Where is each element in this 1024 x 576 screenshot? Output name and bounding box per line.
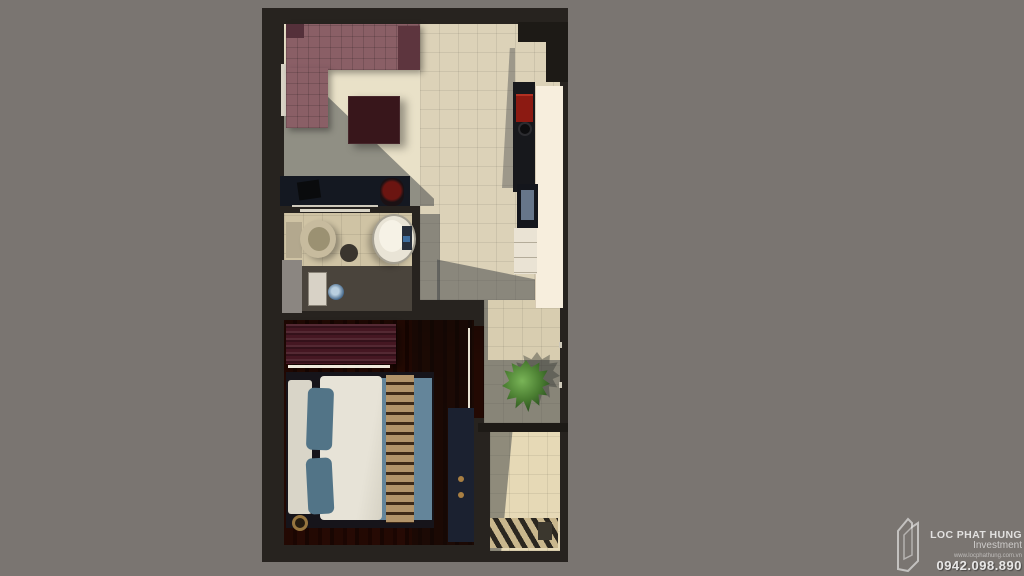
stove-burner bbox=[518, 122, 532, 136]
shower-drain bbox=[328, 284, 344, 300]
bathroom-stool bbox=[340, 244, 358, 262]
doormat-item bbox=[538, 522, 552, 540]
bedroom-doorway-floor bbox=[474, 326, 484, 418]
coffee-table bbox=[348, 96, 400, 144]
watermark-phone: 0942.098.890 bbox=[930, 559, 1022, 573]
watermark-brand: LOC PHAT HUNG bbox=[930, 530, 1022, 541]
water-heater bbox=[308, 272, 327, 306]
bedroom-door-edge bbox=[468, 328, 470, 416]
watermark: LOC PHAT HUNG Investment www.locphathung… bbox=[892, 515, 1022, 573]
sofa-chaise bbox=[286, 68, 328, 128]
pillow-blue-1 bbox=[306, 388, 334, 451]
watermark-text: LOC PHAT HUNG Investment www.locphathung… bbox=[930, 530, 1022, 573]
service-shaft bbox=[282, 260, 302, 313]
wardrobe bbox=[286, 324, 396, 364]
laptop bbox=[297, 180, 321, 201]
watermark-subtitle: Investment bbox=[930, 541, 1022, 552]
desk-chair bbox=[380, 178, 404, 206]
kitchen-counter-white bbox=[535, 86, 563, 308]
toilet-seat bbox=[308, 227, 330, 251]
sofa-corner-cushion bbox=[286, 24, 304, 38]
stove bbox=[516, 94, 533, 122]
wall-step-northeast bbox=[518, 22, 546, 42]
bedside-cabinet bbox=[448, 408, 474, 542]
floor-ornament bbox=[292, 515, 308, 531]
sink-faucet-accent bbox=[403, 236, 410, 242]
logo-building-icon bbox=[892, 515, 926, 573]
apartment-floorplan-render bbox=[262, 8, 568, 562]
bed-runner bbox=[386, 375, 414, 523]
sofa-armrest bbox=[398, 26, 420, 70]
page-background: { "watermark": { "brand": "LOC PHAT HUNG… bbox=[0, 0, 1024, 576]
desk-front-edge bbox=[292, 205, 378, 207]
hall-entry-wall bbox=[478, 423, 568, 432]
wardrobe-highlight bbox=[288, 365, 390, 368]
kitchen-drawers bbox=[514, 228, 537, 274]
cabinet-knob-1 bbox=[458, 476, 464, 482]
bathroom-door-threshold bbox=[300, 209, 370, 212]
right-wall-window-dash-1 bbox=[559, 342, 562, 348]
hallway-shadow-left bbox=[484, 300, 488, 360]
right-wall-window-dash-2 bbox=[559, 382, 562, 388]
pillow-blue-2 bbox=[306, 457, 335, 514]
kitchen-sink-bowl bbox=[521, 190, 534, 220]
wall-block-northeast bbox=[546, 22, 568, 82]
cabinet-knob-2 bbox=[458, 492, 464, 498]
